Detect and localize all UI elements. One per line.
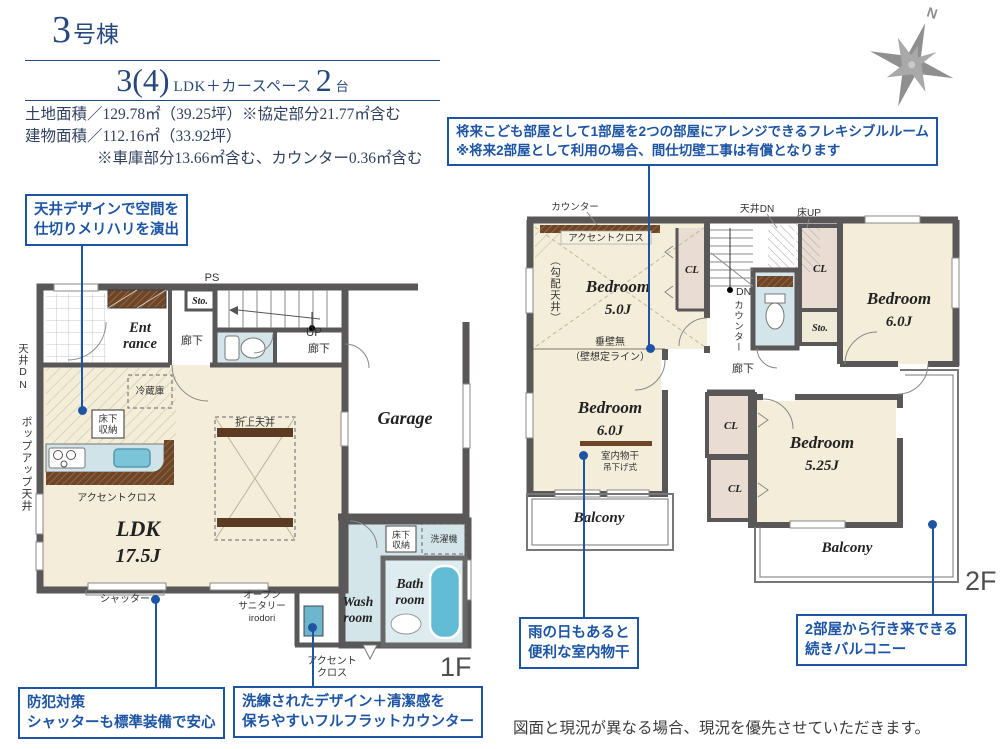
callout-indoor-drying: 雨の日もあると 便利な室内物干 — [519, 617, 639, 669]
washbasin-icon — [391, 614, 421, 634]
building-area: 建物面積／112.16㎡（33.92坪） — [25, 126, 423, 148]
ufs-label-2: 収納 — [98, 424, 117, 436]
entrance-label-2: rance — [123, 336, 157, 352]
callout-ceiling-design: 天井デザインで空間を 仕切りメリハリを演出 — [25, 194, 188, 246]
leader-shutter — [155, 599, 157, 688]
bedroom4-name: Bedroom — [789, 433, 854, 452]
plan-type: LDK＋カースペース — [174, 79, 312, 95]
accent-cross2-2: クロス — [317, 667, 347, 679]
ceiling-dn-label-1f: 天井DN — [16, 343, 31, 392]
car-count: 2 — [316, 62, 332, 98]
bathtub-icon — [430, 566, 460, 638]
hanging-wall-1: 垂壁無 — [595, 335, 625, 348]
bedroom1-size: 5.0J — [605, 302, 632, 318]
hanging-type-label: 吊下げ式 — [603, 462, 638, 472]
ldk-name: LDK — [115, 516, 161, 541]
accent-cross-label-1f: アクセントクロス — [77, 492, 157, 504]
hanging-wall-2: （壁想定ライン） — [570, 350, 650, 363]
ufs2-label-2: 収納 — [392, 539, 410, 550]
window-bedroom4-south — [790, 521, 845, 528]
window-kitchen-west — [36, 494, 43, 534]
land-area: 土地面積／129.78㎡（39.25坪）※協定部分21.77㎡含む — [25, 104, 423, 126]
leader-flat-counter — [312, 627, 314, 687]
counter-side-label: カウンター — [730, 300, 744, 353]
washroom-label-2: room — [343, 610, 372, 625]
leader-dot-indoor-drying — [579, 451, 588, 460]
dn-label: DN — [736, 286, 751, 298]
window-ldk-west — [36, 542, 43, 570]
floor2-label: 2F — [965, 566, 997, 596]
floorplan-sheet: 3 号棟 3(4) LDK＋カースペース 2 台 土地面積／129.78㎡（39… — [0, 0, 1000, 749]
cl1-label: CL — [685, 264, 699, 276]
ceiling-beam-top — [217, 428, 293, 437]
title-rule-bottom — [25, 100, 440, 101]
floor-up-label: 床UP — [797, 206, 821, 219]
open-sanitary-2: サニタリー — [238, 601, 286, 612]
floor1-label: 1F — [440, 652, 472, 682]
disclaimer-text: 図面と現況が異なる場合、現況を優先させていただきます。 — [513, 716, 930, 738]
sloped-ceiling-label: （勾配天井） — [548, 255, 563, 324]
shoe-cabinet — [108, 290, 166, 308]
washroom-door-mark — [363, 645, 377, 659]
window-bedroom1-west — [526, 268, 533, 313]
callout-flexible-room: 将来こども部屋として1部屋を2つの部屋にアレンジできるフレキシブルルーム ※将来… — [447, 117, 938, 166]
car-suffix: 台 — [336, 79, 349, 94]
window-bedroom2-east — [952, 258, 959, 308]
garage-label: Garage — [378, 408, 433, 428]
washroom-label-1: Wash — [343, 594, 374, 609]
leader-dot-ceiling-design — [78, 406, 87, 415]
leader-dot-flat-counter — [308, 623, 317, 632]
ufs2-label-1: 床下 — [392, 529, 410, 540]
ps-label: PS — [205, 272, 220, 284]
area-info: 土地面積／129.78㎡（39.25坪）※協定部分21.77㎡含む 建物面積／1… — [25, 104, 423, 170]
compass-rose-icon: N — [858, 0, 968, 112]
entrance-label-1: Ent — [128, 320, 152, 336]
unit-suffix: 号棟 — [73, 15, 119, 49]
bedroom1-name: Bedroom — [585, 277, 650, 296]
leader-dot-shutter — [151, 595, 160, 604]
bedroom3-name: Bedroom — [577, 398, 642, 417]
sink-icon — [114, 449, 150, 467]
kitchen-counter — [46, 440, 174, 485]
indoor-drying-pole — [580, 441, 652, 446]
window-ldk-east — [341, 412, 348, 446]
counter-top-label: カウンター — [551, 202, 599, 213]
indoor-pole-label: 室内物干 — [601, 450, 639, 462]
ldk-size: 17.5J — [116, 545, 162, 567]
shutter-label: シャッター — [100, 593, 150, 605]
balcony1-label: Balcony — [573, 510, 625, 526]
compass-north-label: N — [925, 4, 940, 22]
bedroom4-size: 5.25J — [805, 458, 839, 474]
sto-label-2f: Sto. — [812, 323, 828, 334]
window-ldk-south — [88, 583, 166, 590]
building-note: ※車庫部分13.66㎡含む、カウンター0.36㎡含む — [25, 148, 423, 170]
open-sanitary-3: irodori — [249, 613, 275, 624]
up-label: UP — [306, 327, 322, 339]
page-title: 3 号棟 — [52, 8, 119, 52]
garage-door-opening — [463, 384, 470, 448]
plan-count: 3(4) — [116, 62, 169, 98]
balcony2-label: Balcony — [821, 540, 873, 556]
callout-security-shutter: 防犯対策 シャッターも標準装備で安心 — [18, 687, 225, 739]
folded-ceiling-label: 折上天井 — [235, 416, 275, 429]
title-rule-top — [25, 60, 440, 61]
callout-flat-counter: 洗練されたデザイン＋清潔感を 保ちやすいフルフラットカウンター — [233, 686, 483, 738]
leader-ceiling-design — [81, 240, 83, 410]
cl3-label: CL — [724, 420, 738, 432]
window-bedroom3-west — [526, 393, 533, 438]
cl2-label: CL — [813, 263, 827, 275]
ceiling-beam-bottom — [217, 518, 293, 527]
leader-flexible-room — [648, 160, 650, 348]
window-bedroom2-north — [865, 216, 920, 223]
hall2-label: 廊下 — [308, 341, 330, 355]
unit-number: 3 — [52, 8, 71, 52]
callout-continuous-balcony: 2部屋から行き来できる 続きバルコニー — [796, 614, 967, 666]
plan-type-row: 3(4) LDK＋カースペース 2 台 — [25, 62, 440, 99]
cl4-label: CL — [728, 483, 742, 495]
ceiling-dn-label-2f: 天井DN — [740, 202, 774, 215]
floorplan-1f: PS Sto. Ent rance 廊下 UP 廊下 冷蔵庫 床下 収納 アクセ… — [20, 272, 480, 684]
leader-continuous-balcony — [932, 524, 934, 615]
floorplan-2f: カウンター アクセントクロス Bedroom 5.0J CL 天井DN 床UP … — [515, 198, 1000, 603]
fridge-label: 冷蔵庫 — [136, 385, 165, 397]
bedroom3-size: 6.0J — [597, 423, 624, 439]
leader-indoor-drying — [583, 455, 585, 618]
accent-cross2-1: アクセント — [307, 655, 357, 667]
leader-dot-continuous-balcony — [928, 520, 937, 529]
ceiling-dn-hatch — [768, 225, 794, 270]
open-sanitary-1: オープン — [243, 590, 280, 601]
hall-label-2f: 廊下 — [732, 361, 754, 375]
sto-label-1f: Sto. — [192, 296, 208, 307]
bathroom-label-1: Bath — [395, 576, 423, 591]
window-ldk-south2 — [210, 583, 268, 590]
bedroom2-size: 6.0J — [886, 314, 913, 330]
laundry-label: 洗濯機 — [430, 533, 457, 544]
hall1-label: 廊下 — [181, 333, 203, 347]
entry-porch-tiles — [46, 293, 106, 362]
accent-cross-label-2f: アクセントクロス — [568, 233, 644, 244]
popup-ceiling-label: ポップアップ天井 — [18, 416, 34, 512]
bedroom2-name: Bedroom — [866, 289, 931, 308]
ufs-label-1: 床下 — [98, 413, 117, 425]
bathroom-label-2: room — [395, 592, 424, 607]
entry-door-opening — [54, 284, 98, 291]
leader-dot-flexible-room — [646, 344, 655, 353]
